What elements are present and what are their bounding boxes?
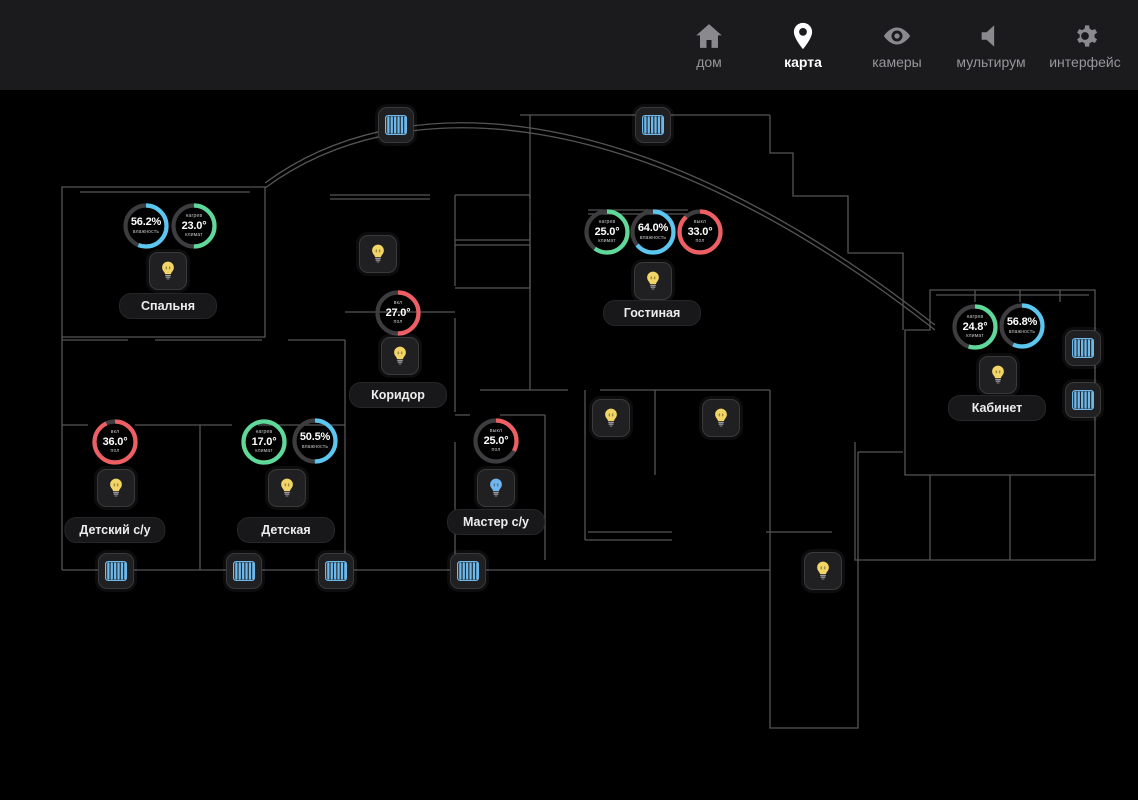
- gauge-value: 24.8°: [963, 322, 988, 333]
- blinds-button[interactable]: [226, 553, 262, 589]
- camera-eye-icon: [882, 21, 912, 51]
- floor-plan-map: 56.2%влажностьнагрев23.0°климатнагрев25.…: [0, 90, 1138, 800]
- light-bulb-icon: [485, 477, 507, 499]
- gauge-value: 33.0°: [688, 227, 713, 238]
- gauge-value: 56.2%: [131, 217, 161, 228]
- gauge-type-label: пол: [696, 239, 705, 244]
- gauge-type-label: влажность: [1009, 330, 1035, 335]
- gauge-value: 27.0°: [386, 308, 411, 319]
- blinds-icon: [457, 561, 479, 581]
- nav-item-label: камеры: [872, 54, 921, 70]
- gauge-mode-label: нагрев: [599, 220, 616, 225]
- room-label: Гостиная: [603, 300, 701, 326]
- room-label: Детская: [237, 517, 335, 543]
- blinds-button[interactable]: [1065, 330, 1101, 366]
- blinds-icon: [233, 561, 255, 581]
- light-bulb-icon: [987, 364, 1009, 386]
- blinds-icon: [642, 115, 664, 135]
- light-button[interactable]: [149, 252, 187, 290]
- light-bulb-icon: [710, 407, 732, 429]
- light-bulb-icon: [157, 260, 179, 282]
- blinds-button[interactable]: [635, 107, 671, 143]
- light-button[interactable]: [97, 469, 135, 507]
- floor-gauge[interactable]: выкл25.0°пол: [472, 417, 520, 465]
- nav-item-cameras[interactable]: камеры: [850, 21, 944, 70]
- speaker-icon: [976, 21, 1006, 51]
- nav-item-map[interactable]: карта: [756, 21, 850, 70]
- gauge-type-label: влажность: [302, 445, 328, 450]
- light-button[interactable]: [268, 469, 306, 507]
- gear-icon: [1070, 21, 1100, 51]
- gauge-type-label: климат: [185, 233, 203, 238]
- light-bulb-icon: [105, 477, 127, 499]
- gauge-value: 25.0°: [484, 436, 509, 447]
- humidity-gauge[interactable]: 50.5%влажность: [291, 417, 339, 465]
- floor-plan-walls: [0, 90, 1138, 800]
- gauge-value: 25.0°: [595, 227, 620, 238]
- humidity-gauge[interactable]: 56.8%влажность: [998, 302, 1046, 350]
- home-icon: [694, 21, 724, 51]
- blinds-button[interactable]: [1065, 382, 1101, 418]
- blinds-icon: [105, 561, 127, 581]
- gauge-type-label: влажность: [133, 230, 159, 235]
- light-button[interactable]: [634, 262, 672, 300]
- gauge-value: 17.0°: [252, 437, 277, 448]
- gauge-value: 56.8%: [1007, 317, 1037, 328]
- light-button[interactable]: [592, 399, 630, 437]
- nav-item-interface[interactable]: интерфейс: [1038, 21, 1132, 70]
- humidity-gauge[interactable]: 56.2%влажность: [122, 202, 170, 250]
- gauge-type-label: климат: [598, 239, 616, 244]
- gauge-mode-label: выкл: [694, 220, 706, 225]
- light-button[interactable]: [359, 235, 397, 273]
- gauge-mode-label: вкл: [111, 430, 119, 435]
- gauge-type-label: пол: [111, 449, 120, 454]
- blinds-button[interactable]: [450, 553, 486, 589]
- blinds-icon: [1072, 390, 1094, 410]
- blinds-icon: [325, 561, 347, 581]
- light-bulb-icon: [600, 407, 622, 429]
- gauge-mode-label: вкл: [394, 301, 402, 306]
- top-navigation-bar: домкартакамерымультируминтерфейс: [0, 0, 1138, 90]
- room-label: Кабинет: [948, 395, 1046, 421]
- floor-gauge[interactable]: выкл33.0°пол: [676, 208, 724, 256]
- gauge-value: 50.5%: [300, 432, 330, 443]
- light-bulb-icon: [812, 560, 834, 582]
- light-button[interactable]: [804, 552, 842, 590]
- nav-item-label: мультирум: [956, 54, 1025, 70]
- nav-item-label: интерфейс: [1049, 54, 1121, 70]
- blinds-icon: [1072, 338, 1094, 358]
- light-button[interactable]: [702, 399, 740, 437]
- light-bulb-icon: [276, 477, 298, 499]
- gauge-value: 36.0°: [103, 437, 128, 448]
- light-bulb-icon: [367, 243, 389, 265]
- climate-gauge[interactable]: нагрев17.0°климат: [240, 418, 288, 466]
- gauge-value: 64.0%: [638, 223, 668, 234]
- room-label: Спальня: [119, 293, 217, 319]
- room-label: Коридор: [349, 382, 447, 408]
- light-bulb-icon: [389, 345, 411, 367]
- nav-item-label: дом: [696, 54, 722, 70]
- light-button[interactable]: [381, 337, 419, 375]
- gauge-mode-label: нагрев: [967, 315, 984, 320]
- blinds-button[interactable]: [318, 553, 354, 589]
- map-pin-icon: [788, 21, 818, 51]
- room-label: Мастер с/у: [447, 509, 545, 535]
- climate-gauge[interactable]: нагрев25.0°климат: [583, 208, 631, 256]
- gauge-type-label: пол: [492, 448, 501, 453]
- nav-item-home[interactable]: дом: [662, 21, 756, 70]
- nav-item-label: карта: [784, 54, 822, 70]
- nav-item-multiroom[interactable]: мультирум: [944, 21, 1038, 70]
- gauge-mode-label: нагрев: [186, 214, 203, 219]
- floor-gauge[interactable]: вкл27.0°пол: [374, 289, 422, 337]
- light-button[interactable]: [477, 469, 515, 507]
- gauge-type-label: влажность: [640, 236, 666, 241]
- gauge-type-label: пол: [394, 320, 403, 325]
- light-button[interactable]: [979, 356, 1017, 394]
- blinds-icon: [385, 115, 407, 135]
- floor-gauge[interactable]: вкл36.0°пол: [91, 418, 139, 466]
- light-bulb-icon: [642, 270, 664, 292]
- blinds-button[interactable]: [378, 107, 414, 143]
- gauge-mode-label: нагрев: [256, 430, 273, 435]
- gauge-type-label: климат: [966, 334, 984, 339]
- gauge-type-label: климат: [255, 449, 273, 454]
- humidity-gauge[interactable]: 64.0%влажность: [629, 208, 677, 256]
- climate-gauge[interactable]: нагрев23.0°климат: [170, 202, 218, 250]
- blinds-button[interactable]: [98, 553, 134, 589]
- room-label: Детский с/у: [64, 517, 165, 543]
- climate-gauge[interactable]: нагрев24.8°климат: [951, 303, 999, 351]
- gauge-value: 23.0°: [182, 221, 207, 232]
- gauge-mode-label: выкл: [490, 429, 502, 434]
